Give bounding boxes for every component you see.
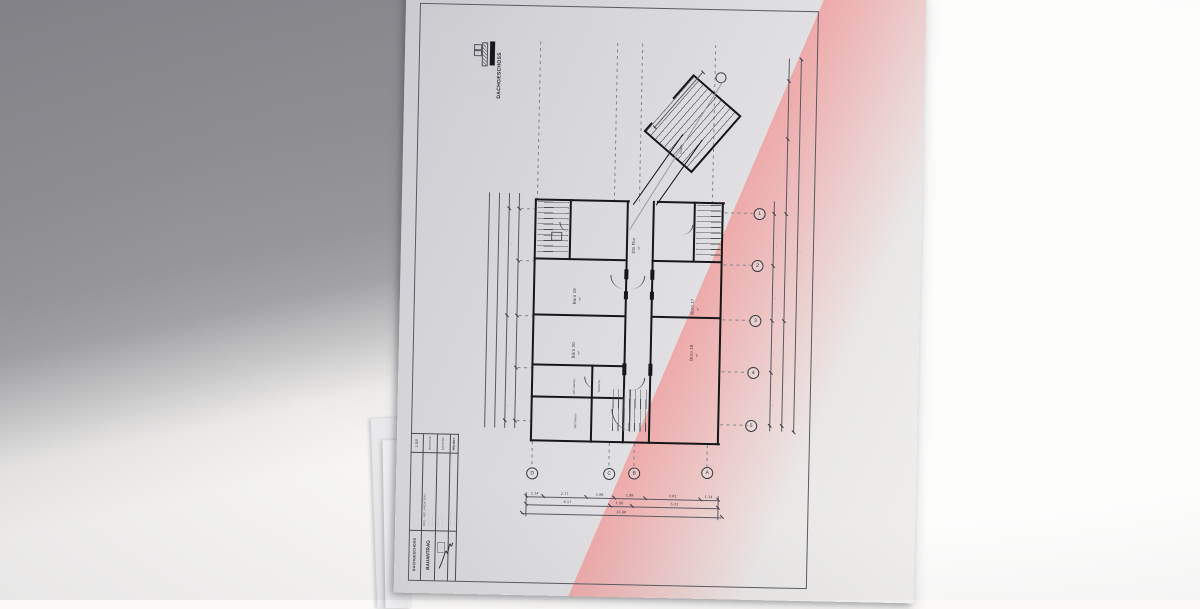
dim-value: ···	[509, 229, 513, 245]
legend-title: DACHGESCHOSS	[496, 39, 503, 99]
door-jamb	[623, 291, 628, 299]
title-block-scale-cell: 1:100	[411, 434, 423, 452]
title-block-project-label-cell: PROJEKT	[450, 435, 458, 453]
room-label-wc-herren: WC Herren	[573, 402, 578, 428]
dim-value: ···	[772, 338, 776, 354]
title-block-architect-lines: DIPL.-ING. ARCHITEKT ····· ··· ····· ···…	[423, 456, 436, 526]
legend-symbol-swatch-2	[474, 50, 482, 56]
door-jamb	[650, 270, 655, 280]
door-jamb	[622, 363, 627, 375]
dim-value: 1.86	[596, 492, 604, 496]
legend-swatch-label: ···	[473, 69, 477, 91]
title-block-project-lines: ········ ······ ····· ········ ······ ··…	[449, 457, 462, 527]
signature	[435, 538, 456, 572]
dim-value: 1.98	[626, 493, 634, 497]
drawing-sheet: DACHGESCHOSS ····· ···· ···	[394, 0, 927, 603]
title-block-scale-label-cell: MASSSTAB	[423, 434, 437, 452]
door-jamb	[648, 364, 653, 376]
fixture-tag-text: ···	[697, 233, 701, 237]
dim-value: ···	[508, 281, 512, 297]
dim-value: 5.31	[671, 502, 679, 506]
legend-swatch-label: ·····	[489, 69, 493, 91]
door-jamb	[649, 292, 654, 300]
title-block-client-lines: ···· ····· ······ ···	[437, 456, 446, 526]
room-label-dg-flur: DG Flur · · m²	[631, 223, 642, 253]
legend-solid-wall-swatch	[490, 41, 495, 65]
dim-value: 2.77	[561, 491, 569, 495]
room-label-buero19: Büro 19 · · m²	[572, 270, 583, 304]
fixture-tag-text: ···	[553, 233, 557, 237]
legend-hatch-swatch	[482, 42, 489, 66]
dim-value: 1.14	[531, 491, 539, 495]
dim-value: ···	[506, 391, 510, 407]
room-label-teekueche: Teeküche	[597, 369, 602, 393]
desk-surface-gray	[0, 0, 430, 600]
dim-value: ···	[771, 391, 775, 407]
title-block: 1:100 MASSSTAB BAUHERR PROJEKT DIPL.-ING…	[408, 433, 459, 581]
drawing-frame	[408, 3, 819, 589]
dim-value: ···	[787, 169, 791, 185]
title-block-doc-type-cell: BAUANTRAG	[420, 530, 435, 580]
title-block-sheet-name-cell: DACHGESCHOSS	[408, 530, 421, 580]
dim-value: 1.14	[705, 494, 713, 498]
title-block-signature-cell	[434, 530, 456, 580]
room-label-buero20: Büro 20 · · m²	[571, 324, 582, 358]
dim-value: ···	[789, 91, 793, 107]
dim-total: ···	[798, 237, 802, 253]
dim-value: 5.17	[564, 500, 572, 504]
dim-value: 3.61	[669, 494, 677, 498]
title-block-client-label-cell: BAUHERR	[437, 434, 450, 452]
legend-swatch-label: ····	[481, 69, 485, 91]
room-label-treppe: Treppe	[679, 128, 684, 154]
room-label-buero18: Büro 18 · · m²	[689, 327, 700, 361]
room-label-buero17: Büro 17 · · m²	[690, 281, 701, 315]
dim-value: ···	[774, 232, 778, 248]
dim-value: ···	[773, 284, 777, 300]
dim-value: ···	[507, 339, 511, 355]
dim-value: 1.36	[616, 501, 624, 505]
room-label-wc-damen: WC Damen	[572, 370, 577, 394]
dim-total: 13.68	[616, 510, 626, 514]
